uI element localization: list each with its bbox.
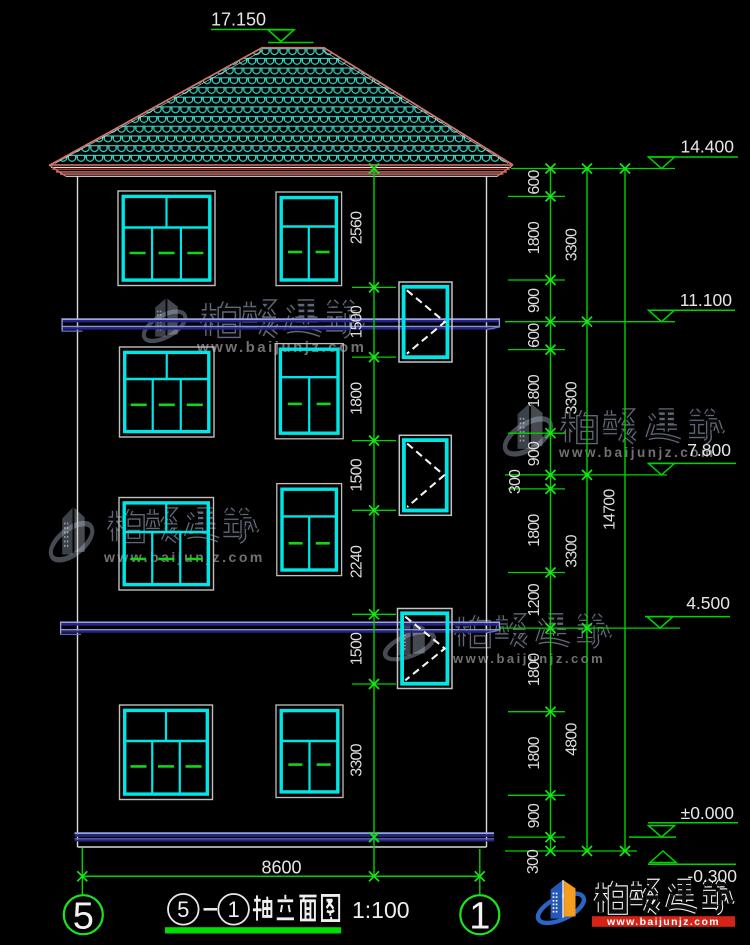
svg-text:8600: 8600 (261, 858, 301, 878)
svg-text:1800: 1800 (526, 514, 543, 547)
svg-text:600: 600 (526, 323, 543, 348)
svg-text:7.800: 7.800 (687, 440, 731, 460)
svg-text:5: 5 (73, 896, 94, 938)
svg-text:www.baijunjz.com: www.baijunjz.com (606, 916, 720, 928)
svg-text:300: 300 (525, 849, 542, 874)
svg-text:1500: 1500 (349, 458, 366, 491)
svg-text:±0.000: ±0.000 (681, 803, 735, 823)
svg-text:11.100: 11.100 (680, 290, 732, 310)
svg-text:14.400: 14.400 (680, 137, 734, 157)
svg-text:3300: 3300 (564, 534, 581, 567)
svg-text:5: 5 (177, 897, 189, 922)
svg-text:2240: 2240 (349, 545, 366, 578)
svg-text:1800: 1800 (526, 221, 543, 254)
svg-text:1800: 1800 (526, 374, 543, 407)
svg-text:900: 900 (526, 288, 543, 313)
svg-text:1800: 1800 (526, 653, 543, 686)
svg-text:1800: 1800 (526, 736, 543, 769)
svg-text:17.150: 17.150 (211, 10, 266, 30)
svg-text:-0.300: -0.300 (687, 866, 737, 886)
svg-text:900: 900 (526, 803, 543, 828)
svg-text:3300: 3300 (349, 743, 366, 776)
svg-text:300: 300 (507, 469, 524, 494)
svg-text:2560: 2560 (349, 211, 366, 244)
svg-text:3300: 3300 (564, 381, 581, 414)
svg-text:1:100: 1:100 (352, 897, 410, 923)
svg-text:4800: 4800 (564, 723, 581, 756)
svg-text:14700: 14700 (602, 489, 619, 530)
svg-text:3300: 3300 (564, 228, 581, 261)
svg-text:1: 1 (469, 896, 490, 938)
svg-text:1800: 1800 (349, 382, 366, 415)
svg-text:www.baijunjz.com: www.baijunjz.com (103, 549, 265, 565)
svg-text:1: 1 (227, 897, 239, 922)
svg-text:1200: 1200 (526, 583, 543, 616)
svg-text:900: 900 (526, 441, 543, 466)
svg-text:600: 600 (526, 169, 543, 194)
svg-text:1500: 1500 (349, 305, 366, 338)
svg-text:1500: 1500 (349, 632, 366, 665)
svg-text:4.500: 4.500 (686, 593, 730, 613)
